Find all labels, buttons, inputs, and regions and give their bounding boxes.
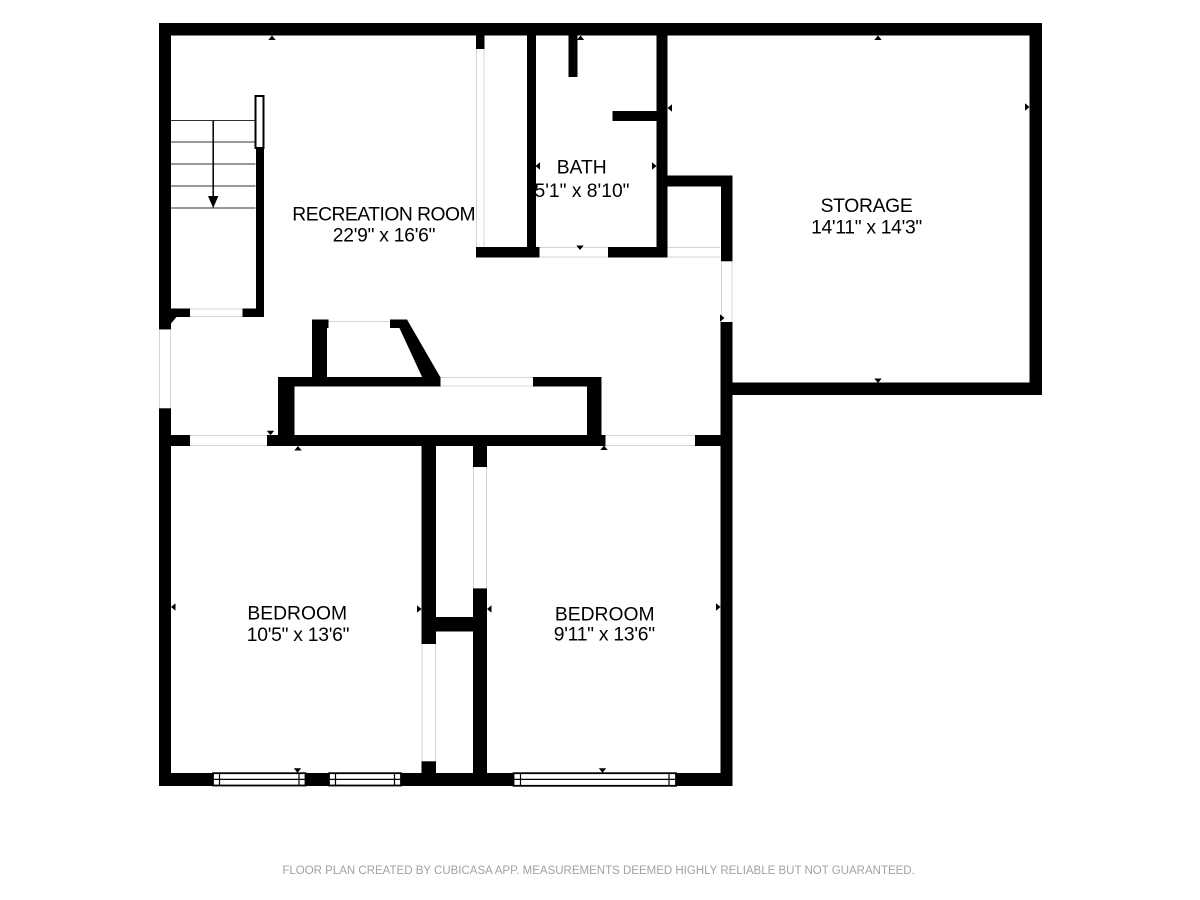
svg-text:10'5" x 13'6": 10'5" x 13'6"	[247, 625, 350, 646]
svg-text:9'11" x 13'6": 9'11" x 13'6"	[554, 625, 655, 646]
svg-text:RECREATION ROOM: RECREATION ROOM	[292, 205, 475, 226]
svg-text:14'11" x 14'3": 14'11" x 14'3"	[811, 218, 922, 239]
svg-text:BEDROOM: BEDROOM	[247, 604, 347, 625]
svg-text:BATH: BATH	[557, 158, 607, 179]
svg-text:BEDROOM: BEDROOM	[555, 604, 655, 625]
svg-text:22'9" x 16'6": 22'9" x 16'6"	[333, 226, 436, 247]
svg-text:FLOOR PLAN CREATED BY CUBICASA: FLOOR PLAN CREATED BY CUBICASA APP. MEAS…	[282, 865, 914, 877]
svg-text:STORAGE: STORAGE	[821, 196, 913, 217]
svg-text:5'1" x 8'10": 5'1" x 8'10"	[534, 181, 629, 202]
